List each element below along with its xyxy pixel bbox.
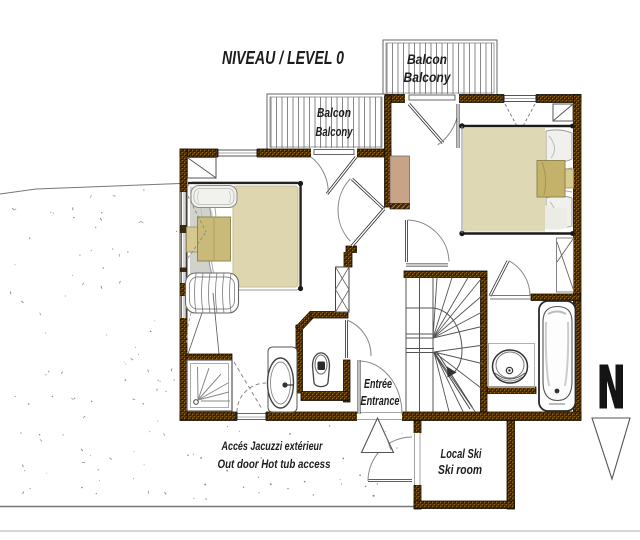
svg-text:Balcon: Balcon [407,52,447,67]
svg-text:Ski room: Ski room [438,463,482,477]
svg-text:Entrée: Entrée [364,377,392,391]
svg-text:Balcony: Balcony [404,70,452,85]
svg-text:Accés Jacuzzi extérieur: Accés Jacuzzi extérieur [221,439,324,453]
svg-text:Balcony: Balcony [316,124,354,139]
svg-text:Entrance: Entrance [361,394,400,408]
svg-text:Balcon: Balcon [317,105,351,120]
svg-text:Out door Hot tub access: Out door Hot tub access [218,457,331,471]
svg-text:NIVEAU / LEVEL 0: NIVEAU / LEVEL 0 [222,48,344,68]
svg-text:Local Ski: Local Ski [441,447,482,461]
